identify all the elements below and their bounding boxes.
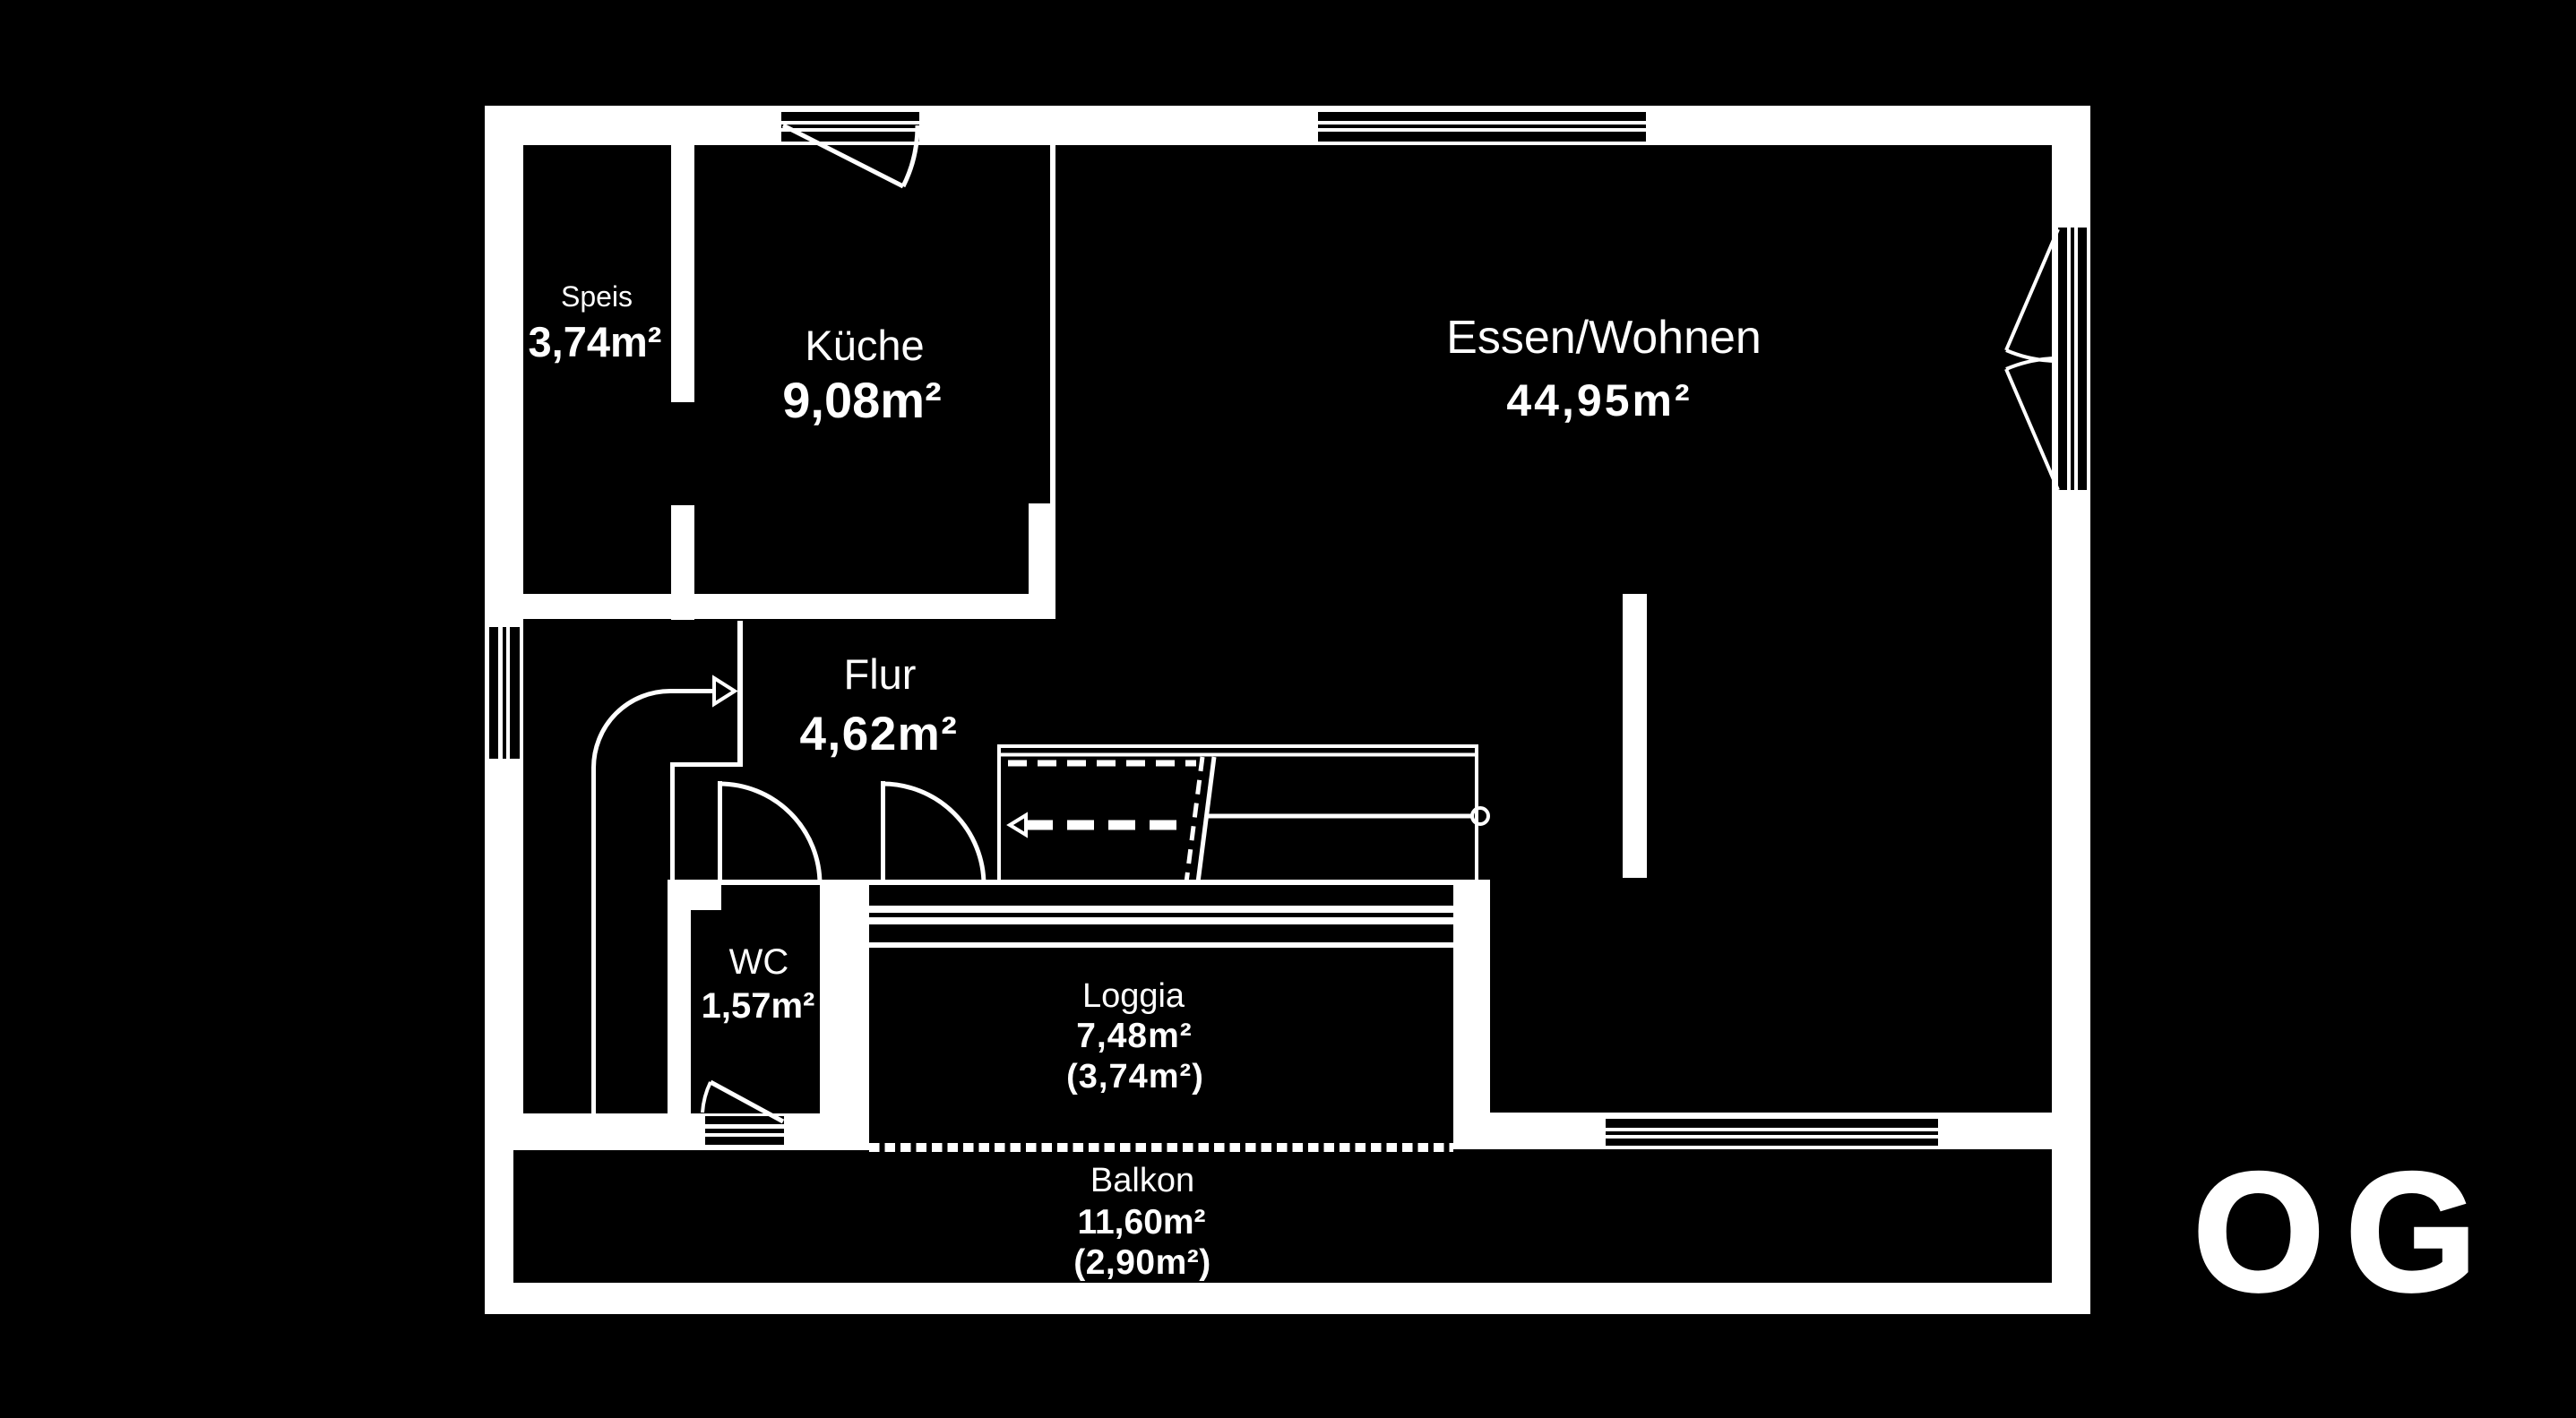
svg-text:WC: WC xyxy=(729,942,789,982)
svg-text:(2,90m²): (2,90m²) xyxy=(1073,1243,1211,1282)
svg-text:Flur: Flur xyxy=(844,650,917,698)
svg-text:1,57m²: 1,57m² xyxy=(702,986,815,1026)
svg-text:Balkon: Balkon xyxy=(1090,1162,1194,1199)
svg-text:(3,74m²): (3,74m²) xyxy=(1066,1058,1204,1096)
svg-text:7,48m²: 7,48m² xyxy=(1076,1017,1193,1055)
svg-text:11,60m²: 11,60m² xyxy=(1077,1203,1205,1242)
svg-text:Speis: Speis xyxy=(561,280,633,313)
svg-text:4,62m²: 4,62m² xyxy=(800,708,959,761)
svg-text:OG: OG xyxy=(2193,1138,2498,1326)
svg-text:3,74m²: 3,74m² xyxy=(529,318,662,365)
svg-text:9,08m²: 9,08m² xyxy=(782,372,941,428)
svg-text:44,95m²: 44,95m² xyxy=(1506,375,1692,425)
svg-text:Loggia: Loggia xyxy=(1082,977,1185,1015)
svg-text:Küche: Küche xyxy=(805,322,924,369)
svg-text:Essen/Wohnen: Essen/Wohnen xyxy=(1446,312,1762,364)
